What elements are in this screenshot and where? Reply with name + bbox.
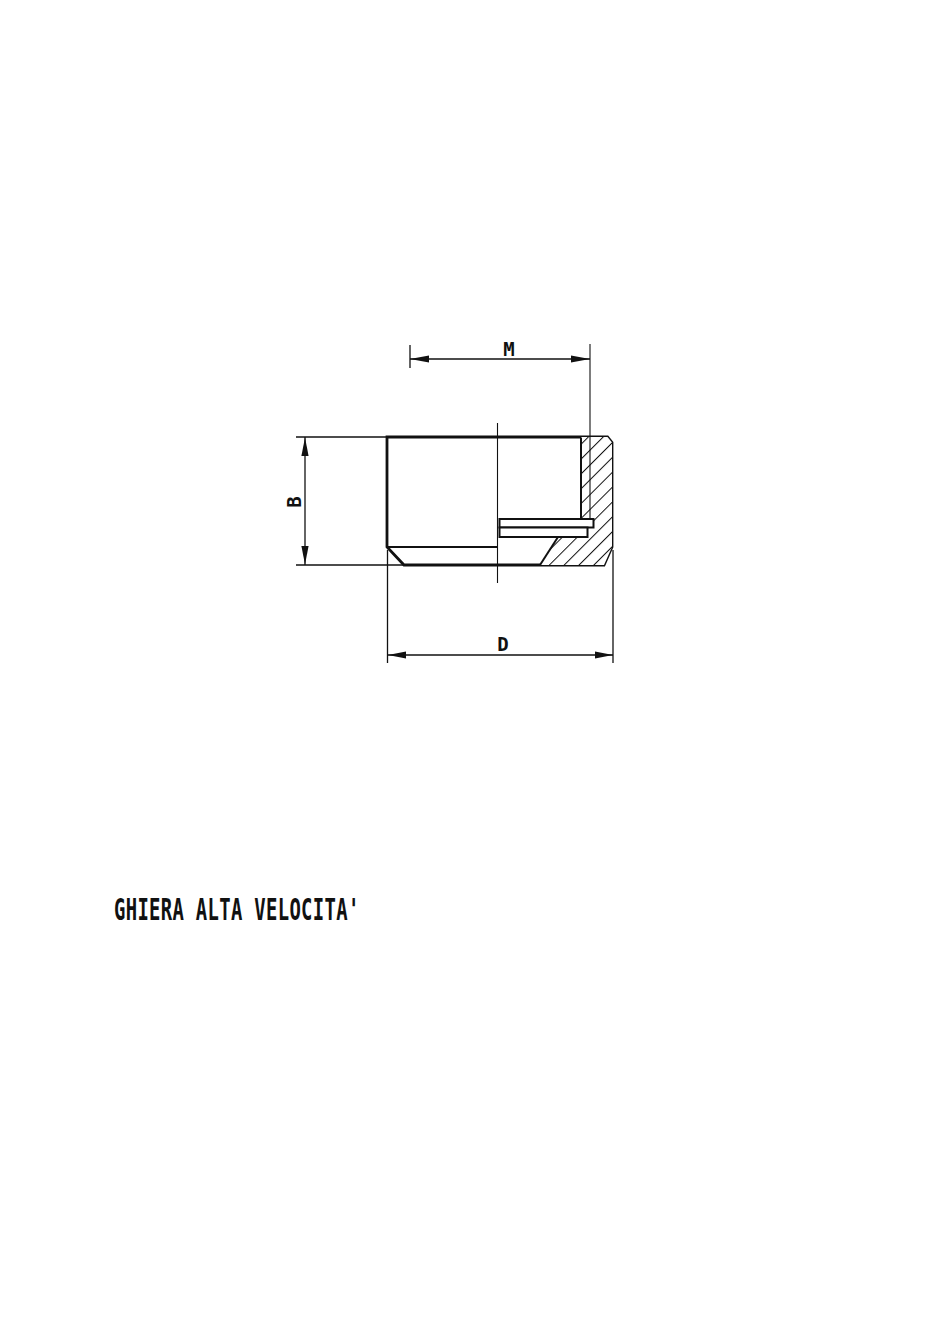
d-arrow-left xyxy=(388,651,406,658)
m-arrow-right xyxy=(571,355,590,362)
m-arrow-left xyxy=(410,355,429,362)
dim-label-b: B xyxy=(282,490,306,514)
drawing-caption: GHIERA ALTA VELOCITA' xyxy=(114,893,360,926)
insert-strip-lower xyxy=(500,528,588,538)
dimension-m xyxy=(410,345,590,368)
locking-insert xyxy=(500,519,594,537)
drawing-page: M B D GHIERA ALTA VELOCITA' xyxy=(0,0,940,1330)
dim-label-d: D xyxy=(497,635,508,654)
dim-label-m: M xyxy=(503,340,514,359)
b-arrow-bottom xyxy=(301,546,308,565)
insert-strip-upper xyxy=(500,519,594,528)
ring-nut-section-drawing xyxy=(0,0,940,1330)
d-arrow-right xyxy=(595,651,613,658)
b-arrow-top xyxy=(301,438,308,457)
